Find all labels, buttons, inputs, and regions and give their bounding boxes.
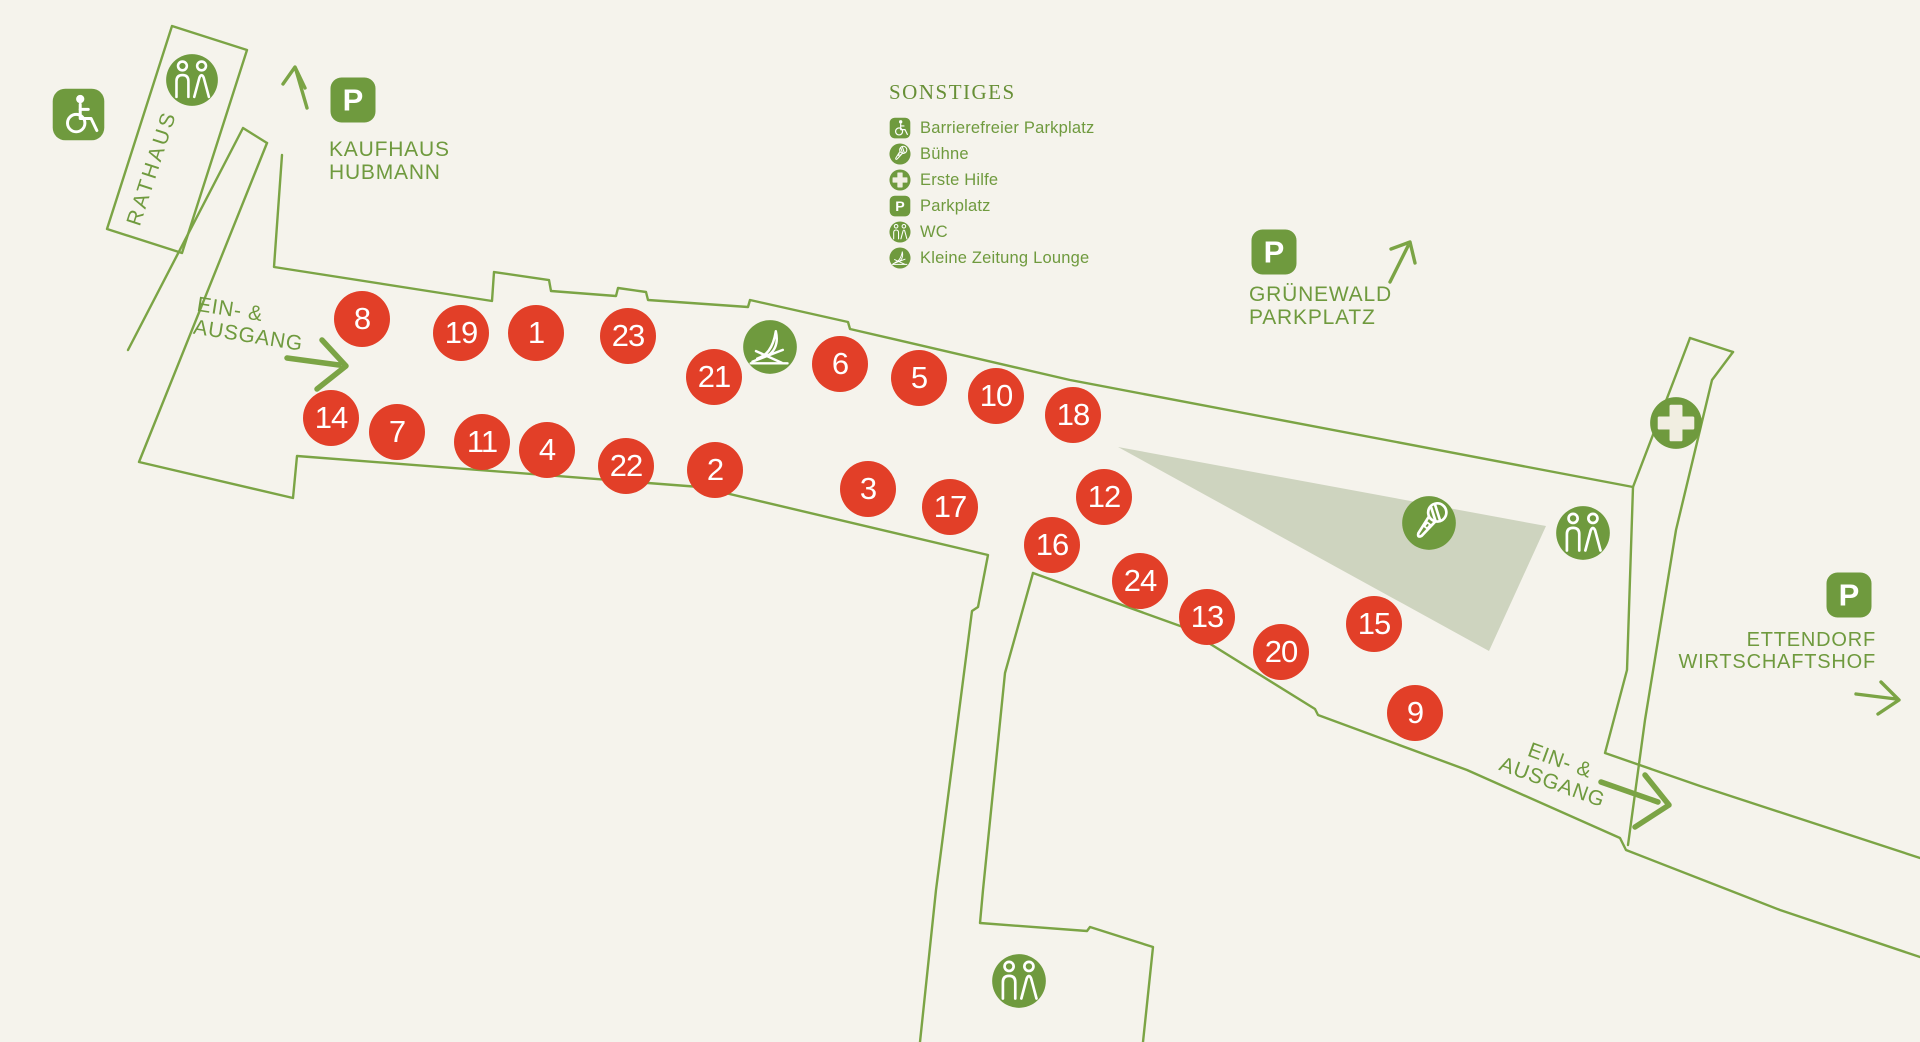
legend: SONSTIGES Barrierefreier ParkplatzBühneE…	[889, 80, 1094, 273]
east-street-cap-outline	[1690, 338, 1733, 352]
stall-19: 19	[433, 305, 489, 361]
stall-15: 15	[1346, 596, 1402, 652]
stall-5: 5	[891, 350, 947, 406]
legend-items: Barrierefreier ParkplatzBühneErste Hilfe…	[889, 117, 1094, 269]
lounge-icon	[742, 319, 798, 380]
stall-4: 4	[519, 422, 575, 478]
stall-17: 17	[922, 479, 978, 535]
stall-7: 7	[369, 404, 425, 460]
festival-map: 819123216510181471142223171216241320159 …	[0, 0, 1920, 1042]
stall-2: 2	[687, 442, 743, 498]
ettendorf-wirtschaftshof-label: ETTENDORF WIRTSCHAFTSHOF	[1679, 629, 1877, 673]
legend-item-label: Barrierefreier Parkplatz	[920, 119, 1094, 138]
ettendorf-arrow	[1856, 682, 1899, 714]
legend-item-label: Erste Hilfe	[920, 171, 998, 190]
legend-item-label: WC	[920, 223, 948, 242]
stall-9: 9	[1387, 685, 1443, 741]
stall-18: 18	[1045, 387, 1101, 443]
parking-icon: P	[1825, 571, 1873, 624]
legend-item-label: Bühne	[920, 145, 969, 164]
wheelchair-icon	[51, 87, 106, 147]
stall-8: 8	[334, 291, 390, 347]
wc-icon	[165, 53, 219, 112]
stall-23: 23	[600, 308, 656, 364]
stall-22: 22	[598, 438, 654, 494]
gruenewald-arrow	[1390, 242, 1415, 282]
stall-14: 14	[303, 390, 359, 446]
street-south-west-outline	[139, 143, 988, 1042]
stall-10: 10	[968, 368, 1024, 424]
legend-title: SONSTIGES	[889, 80, 1094, 105]
lounge-icon	[889, 247, 911, 269]
legend-item-label: Parkplatz	[920, 197, 991, 216]
stall-13: 13	[1179, 589, 1235, 645]
stall-21: 21	[686, 349, 742, 405]
wc-icon	[991, 953, 1047, 1014]
kaufhaus-hubmann-label: KAUFHAUS HUBMANN	[329, 138, 450, 184]
mic-icon	[1401, 495, 1457, 556]
wc-icon	[889, 221, 911, 243]
stall-16: 16	[1024, 517, 1080, 573]
wc-icon	[1555, 505, 1611, 566]
stall-3: 3	[840, 461, 896, 517]
legend-item-label: Kleine Zeitung Lounge	[920, 249, 1089, 268]
stall-11: 11	[454, 414, 510, 470]
parking-icon: P	[329, 76, 377, 129]
svg-text:P: P	[343, 83, 364, 118]
legend-item: Bühne	[889, 143, 1094, 165]
legend-item: Barrierefreier Parkplatz	[889, 117, 1094, 139]
legend-item: Erste Hilfe	[889, 169, 1094, 191]
svg-text:P: P	[1839, 578, 1860, 613]
legend-item: Kleine Zeitung Lounge	[889, 247, 1094, 269]
stall-12: 12	[1076, 469, 1132, 525]
legend-item: PParkplatz	[889, 195, 1094, 217]
svg-text:P: P	[895, 199, 904, 215]
wheelchair-icon	[889, 117, 911, 139]
firstaid-icon	[1649, 396, 1703, 455]
svg-text:P: P	[1264, 235, 1285, 270]
gruenewald-parkplatz-label: GRÜNEWALD PARKPLATZ	[1249, 283, 1392, 329]
stall-6: 6	[812, 336, 868, 392]
parking-icon: P	[1250, 228, 1298, 281]
parking-icon: P	[889, 195, 911, 217]
kaufhaus-arrow	[283, 67, 307, 108]
mic-icon	[889, 143, 911, 165]
stall-20: 20	[1253, 624, 1309, 680]
firstaid-icon	[889, 169, 911, 191]
stall-24: 24	[1112, 553, 1168, 609]
stall-1: 1	[508, 305, 564, 361]
legend-item: WC	[889, 221, 1094, 243]
